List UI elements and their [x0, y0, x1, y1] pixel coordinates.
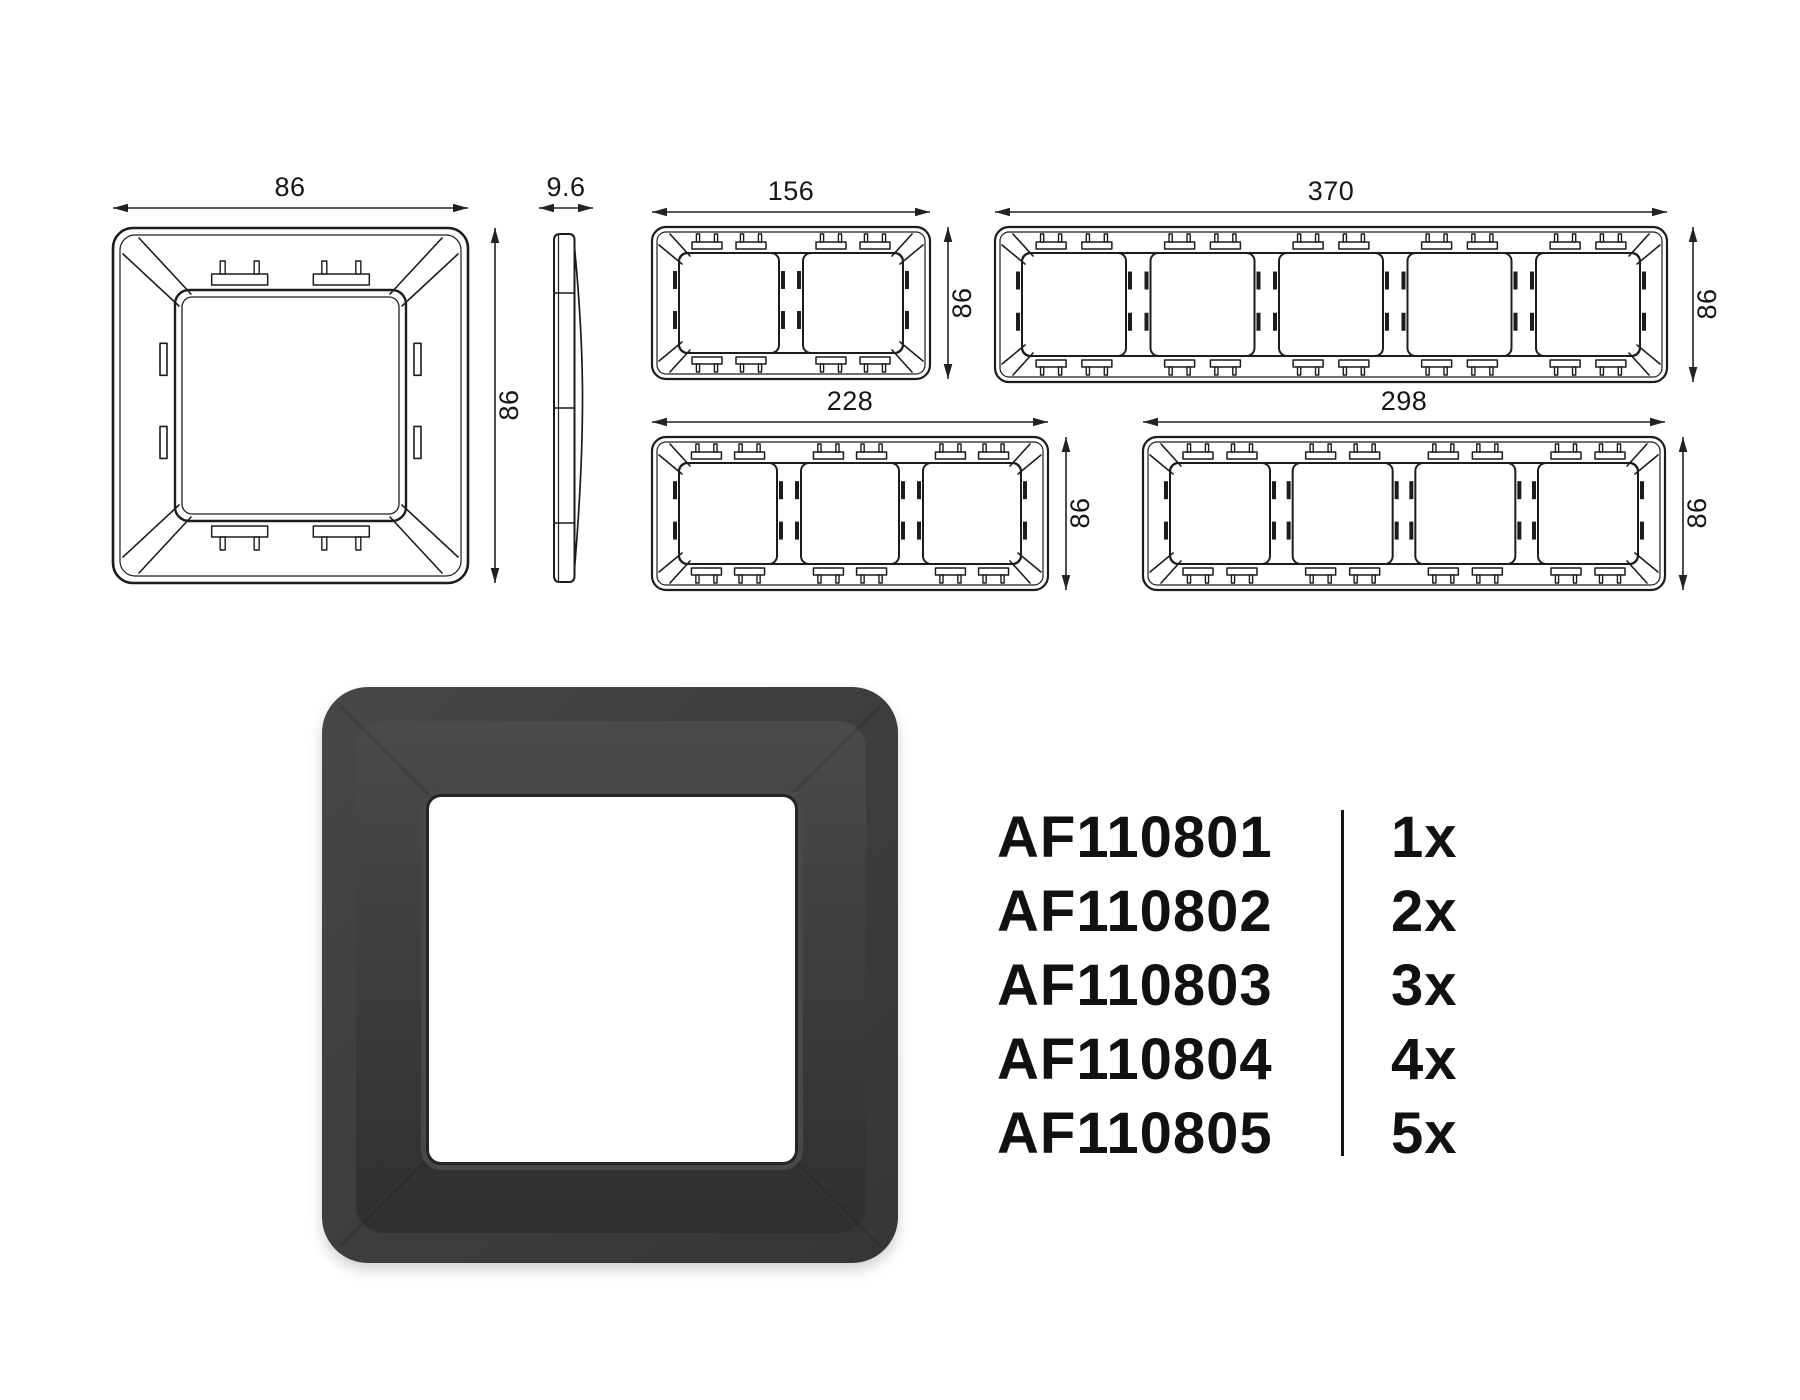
dim-height-2gang: 86	[947, 287, 977, 318]
product-table: AF110801 1x AF110802 2x AF110803 3x AF11…	[997, 800, 1458, 1170]
drawing-3gang-rear-view: 228 86	[642, 362, 1142, 632]
product-qty: 2x	[1391, 878, 1458, 945]
dim-height-4gang: 86	[1682, 497, 1712, 528]
dim-height-1gang: 86	[494, 389, 524, 420]
plate-opening	[426, 794, 798, 1165]
dim-height-3gang: 86	[1065, 497, 1095, 528]
product-row: AF110802 2x	[997, 874, 1458, 948]
product-code: AF110801	[997, 804, 1391, 871]
spec-sheet: 86 86 9.6 156 86 370 86 228 86 298 86	[0, 0, 1800, 1400]
product-code: AF110803	[997, 952, 1391, 1019]
product-render-1gang-frame	[322, 687, 898, 1263]
product-code: AF110805	[997, 1100, 1391, 1167]
table-divider-line	[1341, 810, 1344, 1156]
dim-width-3gang: 228	[827, 386, 874, 416]
product-row: AF110805 5x	[997, 1096, 1458, 1170]
product-qty: 3x	[1391, 952, 1458, 1019]
dim-height-5gang: 86	[1692, 288, 1722, 319]
product-row: AF110803 3x	[997, 948, 1458, 1022]
product-code: AF110804	[997, 1026, 1391, 1093]
dim-width-1gang: 86	[274, 172, 305, 202]
drawing-side-profile: 9.6	[525, 155, 635, 625]
product-code: AF110802	[997, 878, 1391, 945]
product-qty: 1x	[1391, 804, 1458, 871]
profile-bulge-line	[575, 247, 583, 569]
product-row: AF110801 1x	[997, 800, 1458, 874]
product-row: AF110804 4x	[997, 1022, 1458, 1096]
dim-width-5gang: 370	[1308, 176, 1355, 206]
dim-width-2gang: 156	[768, 176, 815, 206]
drawing-1gang-rear-view: 86 86	[85, 155, 540, 625]
product-qty: 4x	[1391, 1026, 1458, 1093]
dim-thickness-profile: 9.6	[546, 172, 585, 202]
product-qty: 5x	[1391, 1100, 1458, 1167]
dim-width-4gang: 298	[1381, 386, 1428, 416]
drawing-4gang-rear-view: 298 86	[1133, 362, 1753, 632]
